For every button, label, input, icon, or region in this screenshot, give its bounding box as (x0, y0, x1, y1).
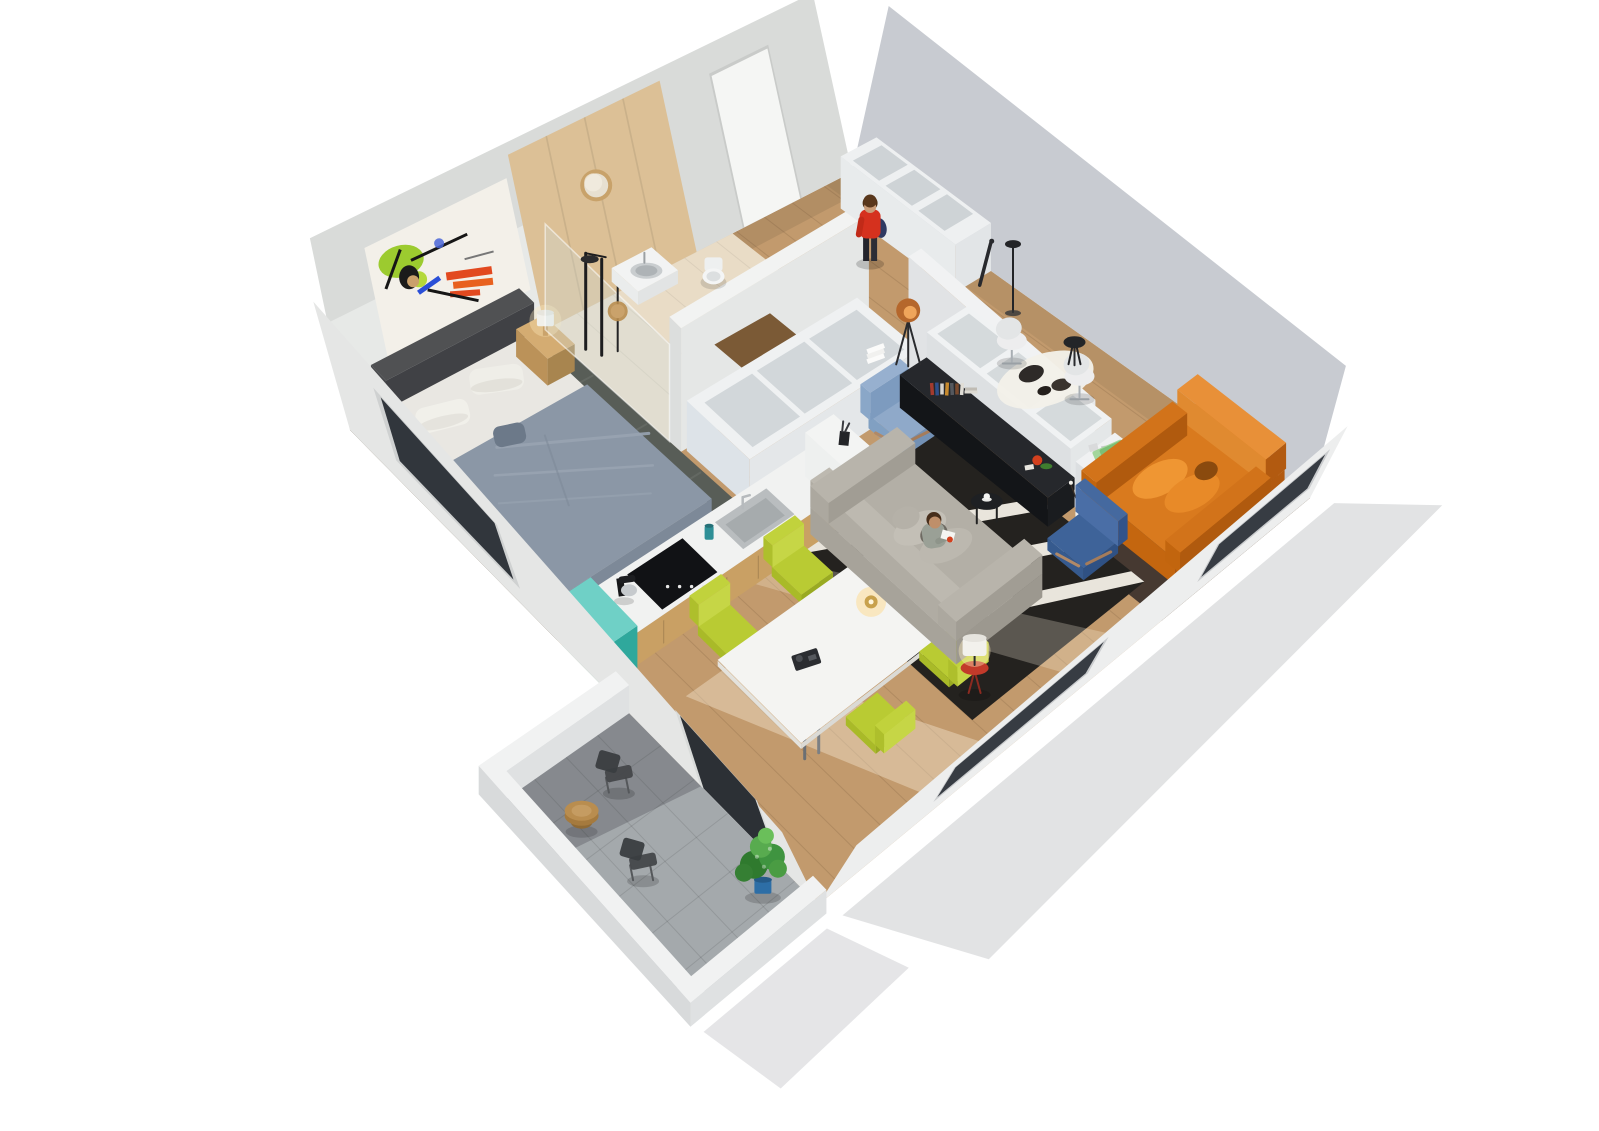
vase-branches (1069, 481, 1073, 485)
potted-plant (755, 855, 759, 859)
red-side-table-drum-lamp (959, 689, 991, 701)
shower-fixture (611, 304, 625, 318)
cooktop-knobs (666, 585, 669, 588)
teal-canister (705, 524, 714, 540)
potted-plant (758, 828, 774, 844)
person-sitting-reading (929, 517, 941, 529)
potted-plant (768, 847, 772, 851)
knife-block (842, 421, 843, 431)
console-books (965, 391, 978, 394)
shower-fixture (581, 255, 599, 263)
umbrella (989, 239, 994, 244)
cabinet-seam (663, 620, 664, 644)
rattan-side-table (565, 801, 599, 838)
bathroom-mirror (584, 173, 602, 191)
cooktop-knobs (690, 585, 693, 588)
bathroom-basin (635, 265, 657, 276)
person-standing-red-jacket (856, 259, 884, 270)
cooktop-knobs (678, 585, 681, 588)
art-abstract-paint (434, 238, 444, 248)
floor-lamp-thin (1005, 240, 1021, 248)
table-radio (796, 655, 803, 662)
bathroom-mirror (580, 169, 612, 201)
floor-plan-render (0, 0, 1599, 1131)
person-standing-red-jacket (863, 237, 869, 261)
console-books (955, 384, 959, 395)
potted-plant (735, 864, 753, 882)
person-sitting-reading (947, 537, 953, 543)
console-books (950, 383, 954, 395)
table-candle-light (869, 599, 874, 604)
coffee-table-cup (984, 493, 990, 499)
bathroom-south-wall (670, 317, 682, 452)
cabinet-seam (758, 555, 759, 579)
person-standing-red-jacket (871, 237, 877, 261)
teal-canister (705, 524, 714, 528)
knife-block (838, 431, 849, 446)
console-decor (1040, 463, 1052, 469)
apartment-floor-plan-3d (0, 0, 1599, 1131)
teal-canister (705, 526, 714, 540)
stand-mixer (614, 597, 634, 605)
console-books (940, 384, 944, 395)
console-books (935, 382, 939, 395)
console-decor (1032, 455, 1042, 465)
floor-lamp-thin (1005, 310, 1021, 316)
potted-plant (762, 865, 766, 869)
stand-mixer (621, 584, 637, 596)
console-books (945, 382, 949, 395)
console-books (965, 388, 977, 391)
potted-plant (769, 860, 787, 878)
red-side-table-drum-lamp (959, 634, 991, 701)
rattan-side-table (572, 805, 592, 817)
art-abstract-paint (407, 275, 419, 287)
person-standing-red-jacket (864, 195, 877, 208)
toilet (707, 271, 721, 281)
copper-tripod-lamp (904, 306, 917, 319)
red-side-table-drum-lamp (963, 634, 987, 642)
black-stool (1064, 336, 1086, 348)
